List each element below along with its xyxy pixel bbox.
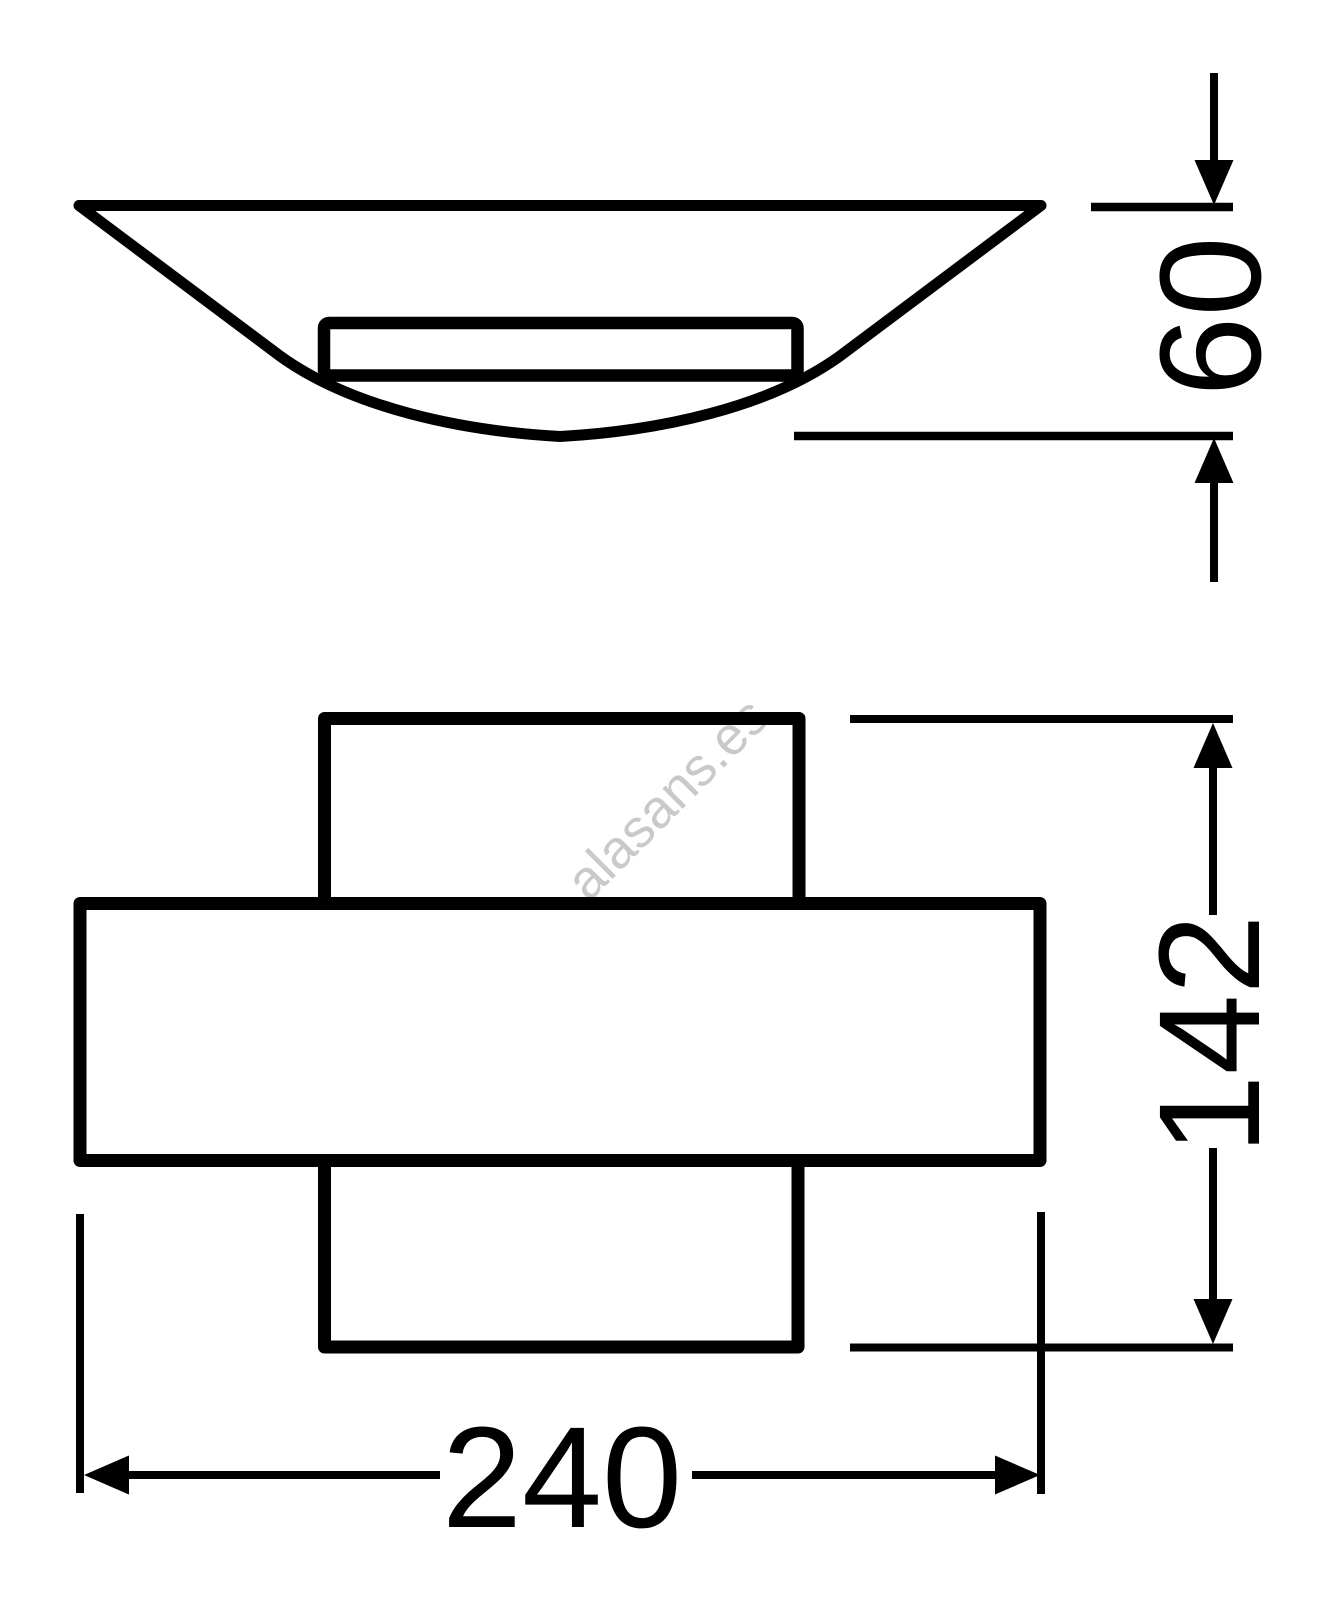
svg-text:60: 60 [1130, 236, 1291, 396]
svg-text:240: 240 [442, 1397, 682, 1558]
svg-text:142: 142 [1129, 914, 1290, 1154]
